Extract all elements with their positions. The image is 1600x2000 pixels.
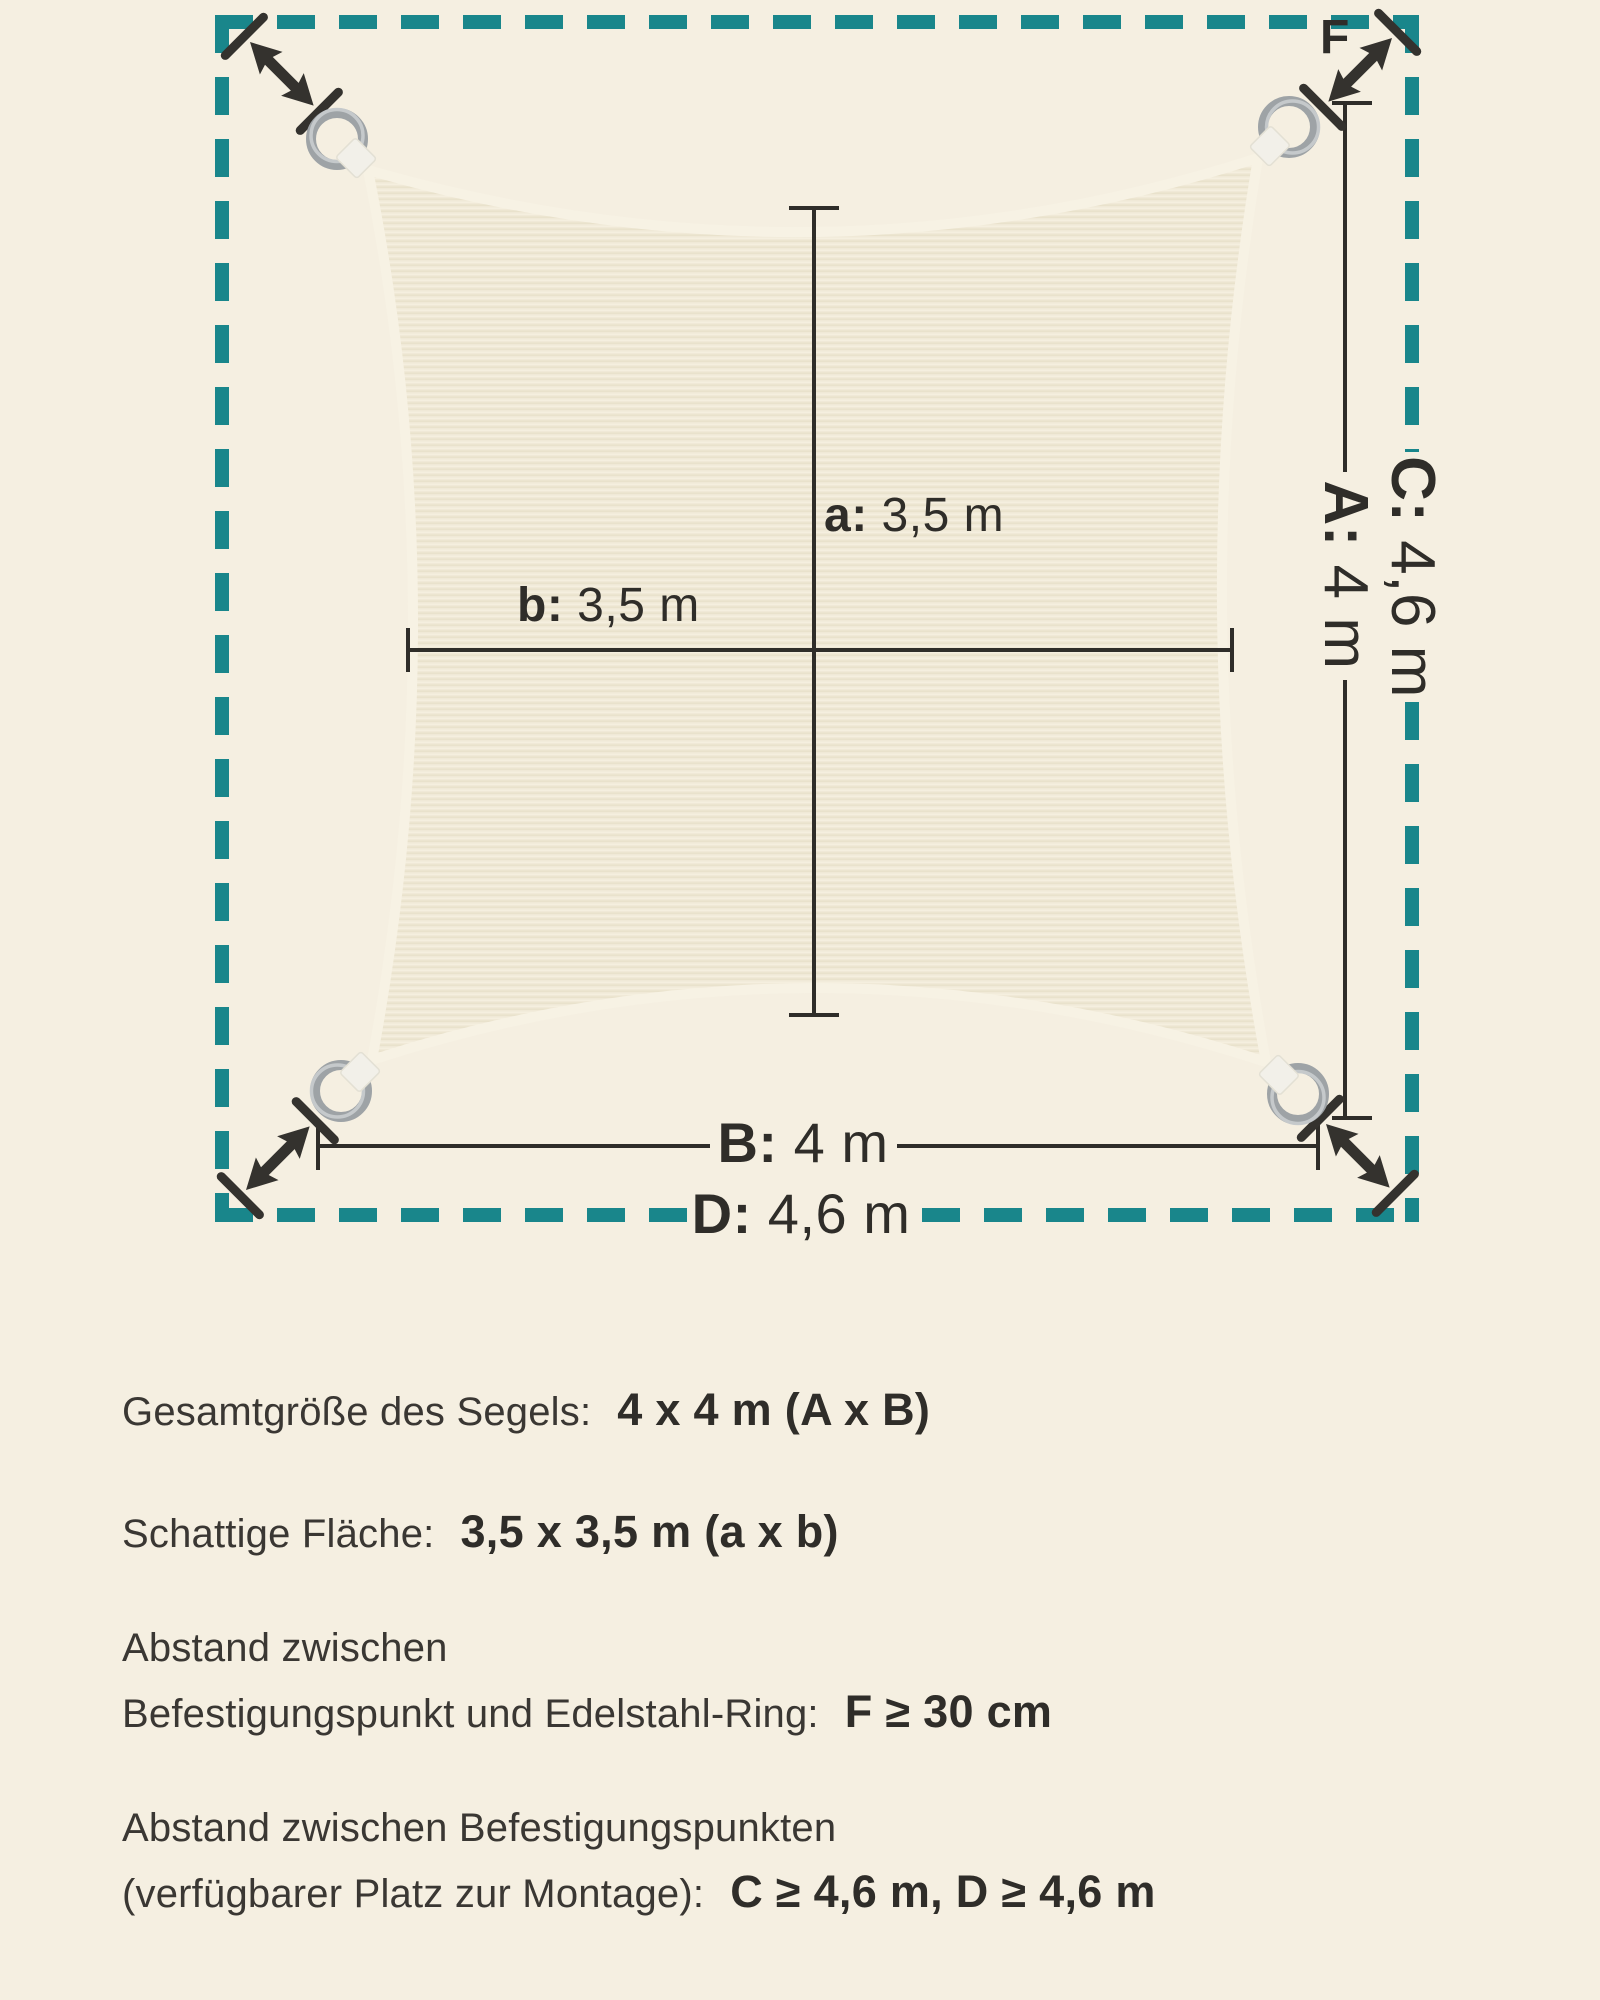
label-a: a: 3,5 m xyxy=(824,492,1004,540)
label-A: A: 4 m xyxy=(1314,480,1376,669)
label-F-key: F xyxy=(1320,11,1350,64)
label-B: B: 4 m xyxy=(717,1115,888,1171)
spec-mount-distance-label1: Abstand zwischen Befestigungspunkten xyxy=(122,1806,836,1851)
spec-ring-distance-label2: Befestigungspunkt und Edelstahl-Ring: xyxy=(122,1692,819,1737)
spec-mount-distance-value: C ≥ 4,6 m, D ≥ 4,6 m xyxy=(730,1866,1156,1918)
label-b-key: b: xyxy=(517,579,563,632)
spec-mount-distance-line2: (verfügbarer Platz zur Montage): C ≥ 4,6… xyxy=(122,1866,1156,1918)
label-D: D: 4,6 m xyxy=(692,1186,911,1242)
label-b-value: 3,5 m xyxy=(577,579,700,632)
spec-mount-distance-line1: Abstand zwischen Befestigungspunkten xyxy=(122,1806,836,1851)
label-F: F xyxy=(1320,14,1350,62)
label-B-value: 4 m xyxy=(794,1111,889,1174)
label-A-key: A: xyxy=(1311,480,1380,546)
label-C: C: 4,6 m xyxy=(1381,456,1443,698)
spec-total-size: Gesamtgröße des Segels: 4 x 4 m (A x B) xyxy=(122,1384,930,1436)
spec-total-size-value: 4 x 4 m (A x B) xyxy=(617,1384,930,1436)
label-b: b: 3,5 m xyxy=(517,582,700,630)
spec-mount-distance-label2: (verfügbarer Platz zur Montage): xyxy=(122,1872,704,1917)
label-C-key: C: xyxy=(1378,456,1447,522)
spec-ring-distance-line2: Befestigungspunkt und Edelstahl-Ring: F … xyxy=(122,1686,1052,1738)
label-D-key: D: xyxy=(692,1182,752,1245)
label-C-value: 4,6 m xyxy=(1378,540,1447,698)
sail-fabric xyxy=(368,158,1266,1062)
label-a-key: a: xyxy=(824,489,868,542)
spec-shaded-area-label: Schattige Fläche: xyxy=(122,1512,434,1557)
spec-shaded-area: Schattige Fläche: 3,5 x 3,5 m (a x b) xyxy=(122,1506,839,1558)
shade-sail-dimension-diagram: a: 3,5 m b: 3,5 m B: 4 m D: 4,6 m A: 4 m… xyxy=(0,0,1600,2000)
spec-ring-distance-line1: Abstand zwischen xyxy=(122,1626,448,1671)
spec-ring-distance-label1: Abstand zwischen xyxy=(122,1626,448,1671)
label-B-key: B: xyxy=(717,1111,777,1174)
spec-shaded-area-value: 3,5 x 3,5 m (a x b) xyxy=(460,1506,838,1558)
spec-total-size-label: Gesamtgröße des Segels: xyxy=(122,1390,591,1435)
label-D-value: 4,6 m xyxy=(768,1182,911,1245)
label-a-value: 3,5 m xyxy=(882,489,1005,542)
label-A-value: 4 m xyxy=(1311,565,1380,670)
spec-ring-distance-value: F ≥ 30 cm xyxy=(845,1686,1053,1738)
